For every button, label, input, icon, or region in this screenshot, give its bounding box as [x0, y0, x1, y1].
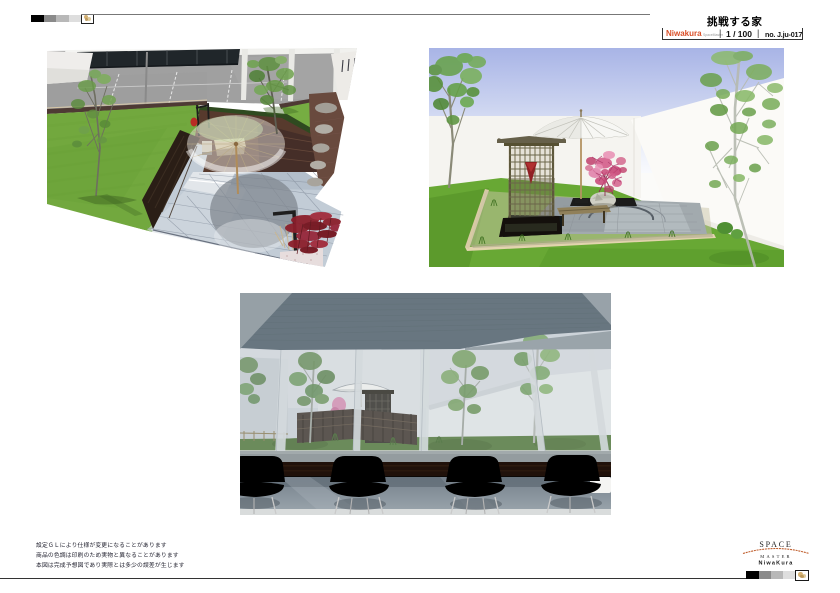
svg-text:NiwaKura: NiwaKura — [759, 561, 794, 567]
svg-text:MASTER: MASTER — [760, 554, 791, 559]
svg-text:SPACE: SPACE — [759, 540, 792, 549]
